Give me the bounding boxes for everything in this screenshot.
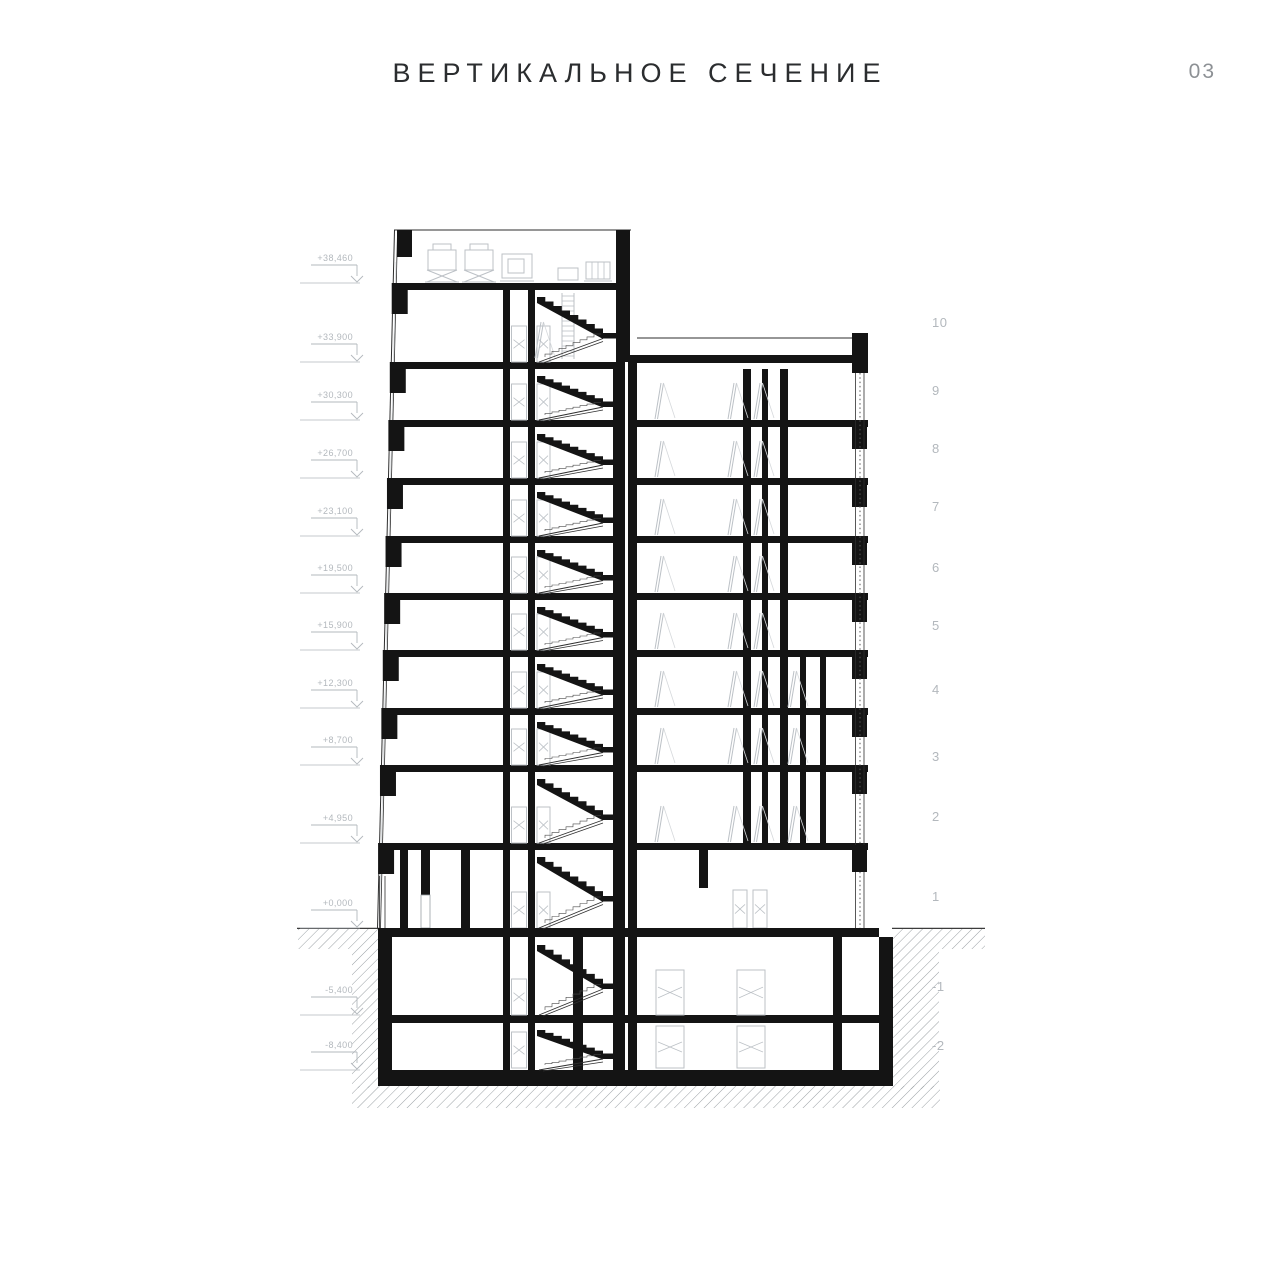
elevator-shaft-wall: [503, 937, 510, 1015]
tower-floor-slab: [386, 536, 625, 543]
ground-hatch-left-band: [352, 949, 378, 1088]
tower-interior-wall: [503, 427, 510, 478]
floor-number-label: -1: [932, 979, 945, 994]
floor-number-label: 3: [932, 749, 940, 764]
tower-window-header-block: [380, 772, 396, 796]
elevation-marker-arrow: [351, 921, 363, 927]
stair-flight-cut: [537, 434, 603, 466]
wing-interior-wall: [800, 657, 806, 708]
elevation-marker-label: +38,460: [317, 253, 353, 263]
floor-number-label: 9: [932, 383, 940, 398]
tower-left-wall-inner: [381, 233, 398, 928]
elevation-marker-label: +8,700: [323, 735, 353, 745]
wing-floor-slab: [637, 420, 868, 427]
wing-interior-wall: [743, 369, 751, 420]
stair-flight-beyond: [539, 820, 603, 843]
cooling-tower-top: [470, 244, 488, 250]
cooling-tower-top: [433, 244, 451, 250]
elevation-marker-arrow: [351, 586, 363, 592]
floor-number-label: -2: [932, 1038, 945, 1053]
elevator-shaft-wall: [503, 1023, 510, 1070]
wing-window-header-block: [852, 845, 867, 872]
tower-floor-slab: [384, 593, 625, 600]
stair-core-right-wall: [613, 362, 625, 1070]
cooling-tower-body: [465, 250, 493, 270]
floor-number-label: 2: [932, 809, 940, 824]
tower-window-header-block: [390, 369, 406, 393]
elevator-shaft-wall: [503, 850, 510, 928]
stair-flight-cut: [537, 492, 603, 524]
foundation-slab: [378, 1070, 893, 1086]
wing-interior-wall: [743, 600, 751, 650]
stair-landing: [603, 333, 620, 339]
floor-number-label: 10: [932, 315, 947, 330]
wing-interior-wall: [743, 715, 751, 765]
ground-door-opening: [421, 895, 430, 928]
elevation-marker-arrow: [351, 758, 363, 764]
hvac-unit: [502, 254, 532, 278]
door-swing: [664, 556, 676, 591]
tower-window-header-block: [392, 290, 408, 314]
wing-interior-wall: [743, 543, 751, 593]
basement-left-wall: [378, 937, 392, 1086]
tower-interior-wall: [503, 657, 510, 708]
stair-landing: [603, 815, 620, 821]
tower-interior-wall: [503, 485, 510, 536]
stair-landing: [603, 747, 620, 753]
wing-interior-wall: [780, 715, 788, 765]
floor-number-label: 1: [932, 889, 940, 904]
elevation-marker-label: +33,900: [317, 332, 353, 342]
wing-interior-wall: [762, 600, 768, 650]
floor-number-label: 6: [932, 560, 940, 575]
tower-floor-slab: [383, 650, 625, 657]
door-swing: [664, 441, 676, 476]
tower-shaft-wall: [528, 427, 535, 478]
elevation-marker-arrow: [351, 643, 363, 649]
tower-floor-slab: [380, 765, 625, 772]
tower-shaft-wall: [528, 715, 535, 765]
page: ВЕРТИКАЛЬНОЕ СЕЧЕНИЕ 03 +38,460+33,900+3…: [0, 0, 1280, 1280]
tower-window-header-block: [378, 850, 394, 874]
door-swing: [664, 806, 676, 841]
wing-interior-wall: [780, 543, 788, 593]
door-swing: [544, 322, 556, 357]
wing-interior-wall: [762, 715, 768, 765]
wing-roof-slab: [628, 355, 868, 363]
tower-window-header-block: [386, 543, 402, 567]
elevation-marker-arrow: [351, 276, 363, 282]
elevation-marker-arrow: [351, 836, 363, 842]
stair-flight-cut: [537, 550, 603, 581]
stair-flight-cut: [537, 857, 603, 902]
ground-hatch-right-band: [893, 949, 939, 1089]
wing-interior-wall: [762, 485, 768, 536]
elevation-marker-label: +19,500: [317, 563, 353, 573]
tower-interior-wall: [503, 369, 510, 420]
tower-floor-slab: [392, 283, 625, 290]
wing-interior-wall: [820, 715, 826, 765]
door-swing: [664, 728, 676, 763]
tower-interior-wall: [503, 715, 510, 765]
wing-floor-slab: [637, 650, 868, 657]
elevator-shaft-wall: [528, 937, 535, 1015]
tower-parapet-block: [397, 230, 412, 257]
stair-flight-cut: [537, 945, 603, 990]
wing-interior-wall: [762, 657, 768, 708]
wing-interior-wall: [762, 543, 768, 593]
ground-wall: [461, 850, 470, 928]
wing-interior-wall: [762, 369, 768, 420]
door-swing: [664, 499, 676, 534]
stair-landing: [603, 1054, 620, 1060]
stair-landing: [603, 460, 620, 466]
elevation-marker-arrow: [351, 529, 363, 535]
tower-interior-wall: [503, 600, 510, 650]
tower-window-header-block: [384, 600, 400, 624]
tower-shaft-wall: [528, 772, 535, 843]
wing-interior-wall: [780, 485, 788, 536]
wing-interior-wall: [820, 657, 826, 708]
wing-interior-wall: [743, 427, 751, 478]
basement-wall: [833, 1023, 842, 1070]
wing-floor-slab: [637, 536, 868, 543]
basement-right-wall: [879, 937, 893, 1086]
wing-parapet-block: [852, 333, 868, 373]
elevator-shaft-wall: [528, 1023, 535, 1070]
basement-wall: [833, 937, 842, 1015]
hvac-unit-inner: [508, 259, 524, 273]
tower-floor-slab: [378, 843, 625, 850]
door-swing: [664, 671, 676, 706]
elevation-marker-label: +12,300: [317, 678, 353, 688]
wing-interior-wall: [780, 369, 788, 420]
door-swing: [664, 383, 676, 418]
wing-interior-wall: [800, 715, 806, 765]
wing-interior-wall: [780, 600, 788, 650]
stair-landing: [603, 896, 620, 902]
basement-slab: [392, 1015, 879, 1023]
elevation-marker-label: +0,000: [323, 898, 353, 908]
stair-steps-line: [545, 897, 601, 923]
stair-landing: [603, 632, 620, 638]
elevation-marker-arrow: [351, 355, 363, 361]
elevation-marker-arrow: [351, 471, 363, 477]
ground-hatch-left-strip: [298, 929, 378, 949]
roof-unit: [558, 268, 578, 280]
ground-slab: [378, 928, 879, 937]
wing-floor-slab: [637, 843, 868, 850]
wing-floor-slab: [637, 708, 868, 715]
tower-floors: [503, 290, 550, 843]
floor-number-label: 8: [932, 441, 940, 456]
wing-interior-wall: [820, 772, 826, 843]
stair-flight-beyond: [539, 339, 603, 363]
floor-number-label: 7: [932, 499, 940, 514]
cooling-tower-body: [428, 250, 456, 270]
stair-flight-beyond: [539, 989, 603, 1015]
tower-window-header-block: [383, 657, 399, 681]
wing-interior-wall: [780, 427, 788, 478]
expansion-joint-gap: [625, 369, 628, 928]
stair-flight-beyond: [539, 1059, 603, 1070]
stair-flight-beyond: [539, 902, 603, 929]
tower-floor-slab: [381, 708, 625, 715]
elevation-marker-label: +4,950: [323, 813, 353, 823]
ground-hatch-bottom-strip: [352, 1086, 940, 1108]
stair-flight-cut: [537, 722, 603, 753]
stair-flight-cut: [537, 1030, 603, 1060]
wing-interior-wall: [780, 657, 788, 708]
tower-floor-slab: [388, 420, 625, 427]
tower-interior-wall: [503, 543, 510, 593]
wing-interior-wall: [743, 772, 751, 843]
stair-flight-cut: [537, 779, 603, 821]
elevation-marker-label: -5,400: [325, 985, 353, 995]
wing-interior-wall: [780, 772, 788, 843]
tower-left-wall-outer: [378, 230, 395, 928]
wing-window-header-block: [852, 595, 867, 622]
floor-number-label: 5: [932, 618, 940, 633]
tower-right-wall: [616, 230, 630, 362]
ground-wall: [400, 850, 408, 928]
elevation-marker-arrow: [351, 413, 363, 419]
roof-ladder: [562, 293, 574, 359]
elevation-marker-label: +30,300: [317, 390, 353, 400]
wing-window-header-block: [852, 767, 867, 794]
roof-equipment: [425, 244, 612, 282]
tower-shaft-wall: [528, 600, 535, 650]
tower-shaft-wall: [528, 485, 535, 536]
tower-shaft-wall: [528, 290, 535, 362]
elevation-marker-label: +23,100: [317, 506, 353, 516]
tower-shaft-wall: [528, 369, 535, 420]
tower-window-header-block: [381, 715, 397, 739]
tower-floor-slab: [387, 478, 625, 485]
stair-flight-cut: [537, 607, 603, 638]
tower-shaft-wall: [528, 543, 535, 593]
ground-wall: [421, 850, 430, 895]
tower-shaft-wall: [528, 657, 535, 708]
stair-landing: [603, 402, 620, 408]
stair-flight-cut: [537, 376, 603, 408]
wing-left-wall: [628, 355, 637, 1070]
ground-wall: [699, 850, 708, 888]
tower-window-header-block: [388, 427, 404, 451]
tower-interior-wall: [503, 772, 510, 843]
building-section: [378, 230, 894, 1086]
elevation-marker-label: +15,900: [317, 620, 353, 630]
wing-floor-slab: [637, 478, 868, 485]
tower-floor-slab: [390, 362, 625, 369]
section-drawing: +38,460+33,900+30,300+26,700+23,100+19,5…: [0, 0, 1280, 1280]
stair-landing: [603, 575, 620, 581]
stair-flight-cut: [537, 664, 603, 696]
wing-interior-wall: [743, 485, 751, 536]
wing-interior-wall: [743, 657, 751, 708]
stair-landing: [603, 984, 620, 990]
elevation-marker-label: -8,400: [325, 1040, 353, 1050]
tower-window-header-block: [387, 485, 403, 509]
elevation-marker-label: +26,700: [317, 448, 353, 458]
tower-interior-wall: [503, 290, 510, 362]
ground-hatch-right-strip: [893, 929, 985, 949]
wing-floor-slab: [637, 765, 868, 772]
elevation-marker-arrow: [351, 701, 363, 707]
wing-floor-slab: [637, 593, 868, 600]
stair-landing: [603, 518, 620, 524]
stair-landing: [603, 690, 620, 696]
floor-number-label: 4: [932, 682, 940, 697]
elevator-shaft-wall: [528, 850, 535, 928]
door-swing: [664, 613, 676, 648]
wing-interior-wall: [762, 427, 768, 478]
